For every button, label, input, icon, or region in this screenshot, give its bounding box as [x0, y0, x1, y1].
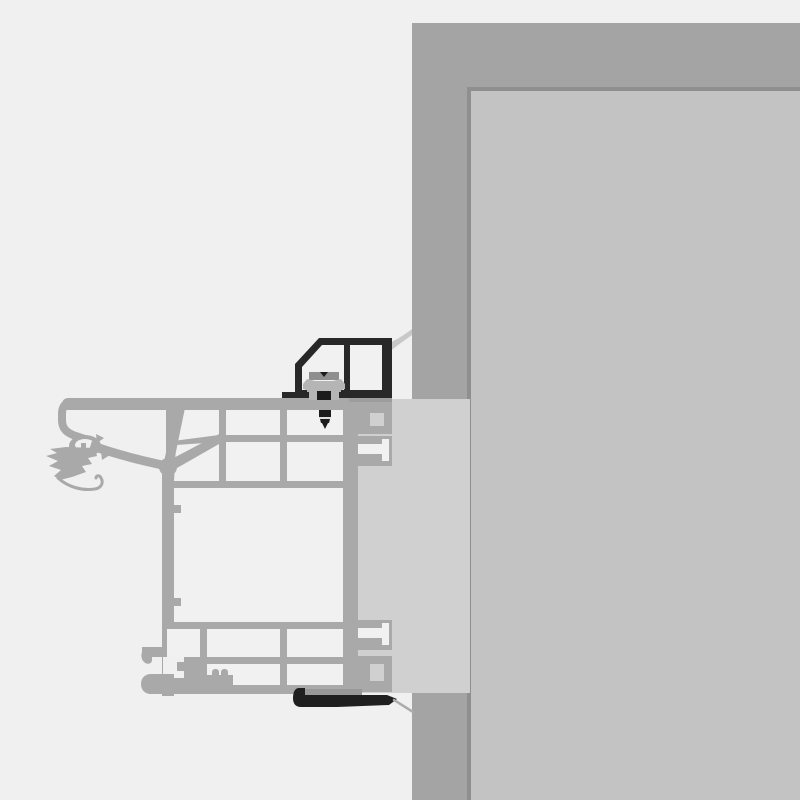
connector-t-key-stem	[358, 444, 382, 454]
cross-section-diagram	[0, 0, 800, 800]
frame-rib	[221, 669, 228, 681]
frame-nub	[174, 598, 181, 606]
frame-cell	[226, 442, 280, 481]
frame-cell	[287, 442, 343, 481]
connector-t-key-head	[382, 623, 389, 645]
frame-cell	[287, 410, 343, 435]
connector-t-key-stem	[358, 628, 382, 638]
clip-foot	[330, 392, 339, 400]
seal-backing-strip	[300, 689, 362, 696]
connector-head	[384, 413, 392, 434]
fastening-screw-head	[317, 391, 331, 400]
connector-t-key-head	[382, 439, 389, 461]
frame-cell	[287, 664, 343, 685]
connector-spine	[358, 660, 370, 683]
frame-cell	[167, 629, 200, 657]
frame-central-cell	[174, 488, 343, 622]
wall-face-surface	[471, 91, 800, 800]
frame-cell	[226, 410, 280, 435]
frame-cell	[207, 629, 280, 657]
frame-cell	[287, 629, 343, 657]
screw-shank	[319, 410, 331, 418]
frame-rib	[212, 669, 219, 681]
clip-foot	[309, 392, 318, 400]
screw-thread-line	[319, 417, 331, 419]
cross-section-diagram-canvas	[0, 0, 800, 800]
gasket-junction	[159, 458, 177, 476]
screw-taper	[320, 419, 330, 423]
hardware-groove-tab	[177, 662, 185, 671]
wall-edge-line-horizontal	[467, 87, 800, 91]
frame-nub	[174, 505, 181, 513]
connector-head	[384, 656, 392, 681]
interior-wall-face	[467, 87, 800, 800]
connector-band	[352, 402, 392, 413]
frame-rib-step	[207, 675, 233, 686]
cover-profile-right-chamber	[350, 345, 382, 390]
wall-section-bottom	[412, 693, 470, 800]
